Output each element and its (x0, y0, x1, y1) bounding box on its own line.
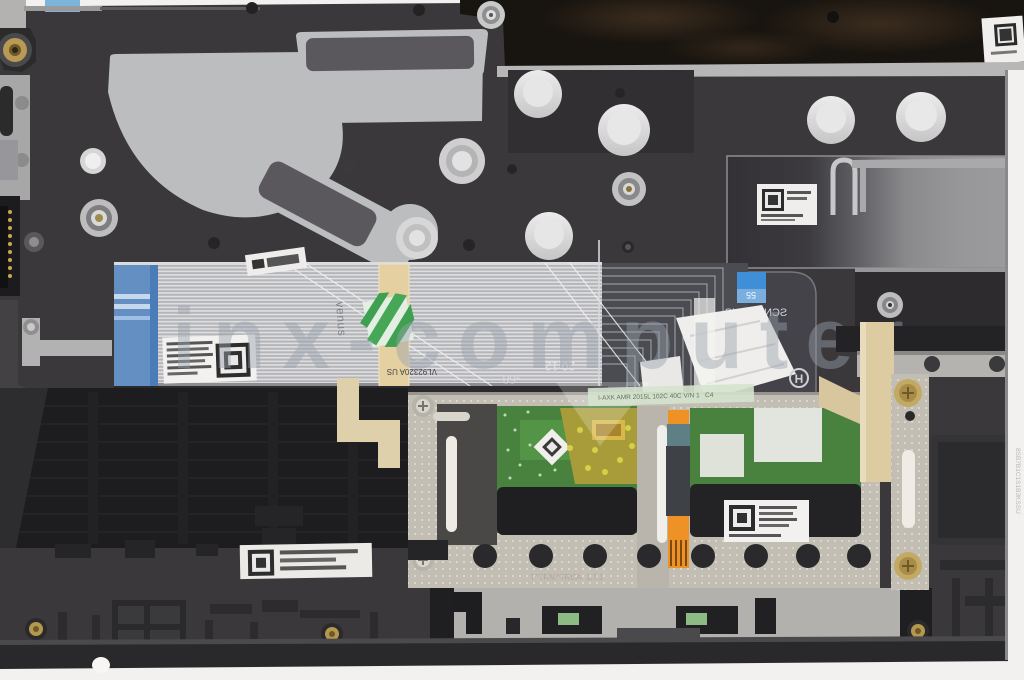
svg-text:8SB7B1C1S1B3KSSU: 8SB7B1C1S1B3KSSU (1014, 448, 1021, 514)
svg-text:inx-computer: inx-computer (172, 291, 921, 387)
svg-text:T^TRM^TRCA 1.7.1: T^TRM^TRCA 1.7.1 (530, 573, 604, 582)
